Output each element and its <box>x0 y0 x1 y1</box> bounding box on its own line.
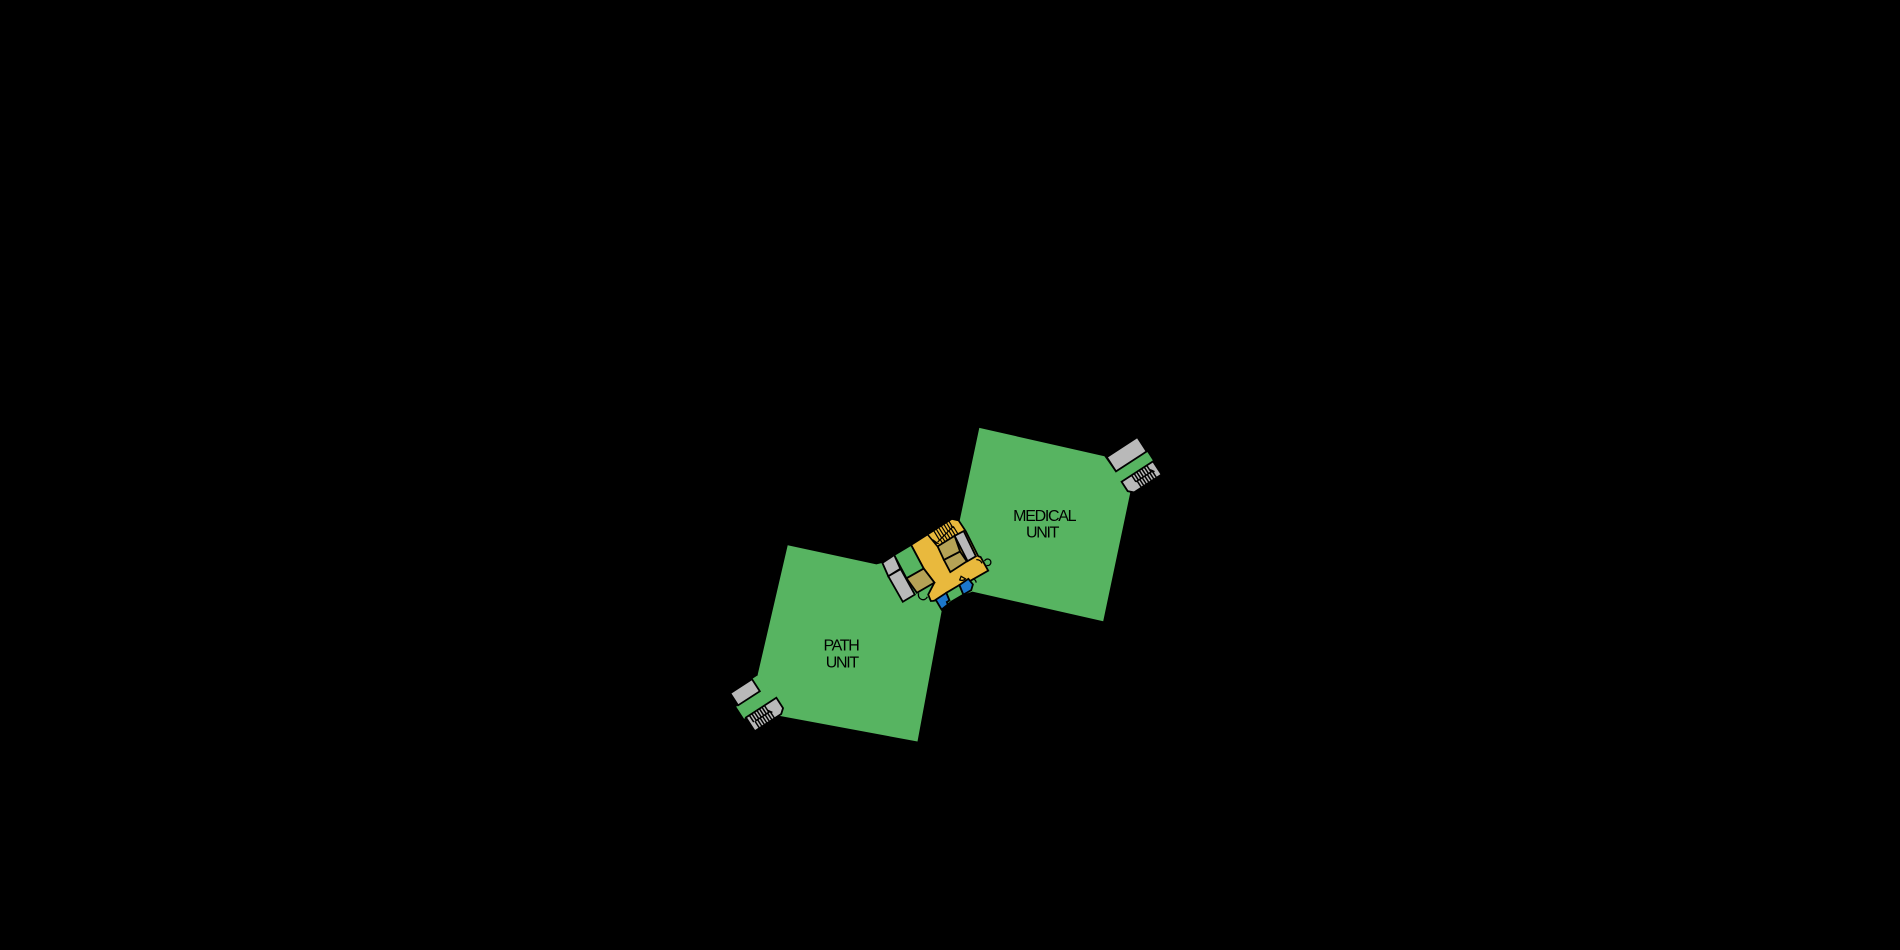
svg-text:PATH: PATH <box>823 638 859 655</box>
svg-text:UNIT: UNIT <box>826 655 860 672</box>
svg-text:UNIT: UNIT <box>1026 525 1060 542</box>
svg-text:MEDICAL: MEDICAL <box>1013 508 1076 525</box>
